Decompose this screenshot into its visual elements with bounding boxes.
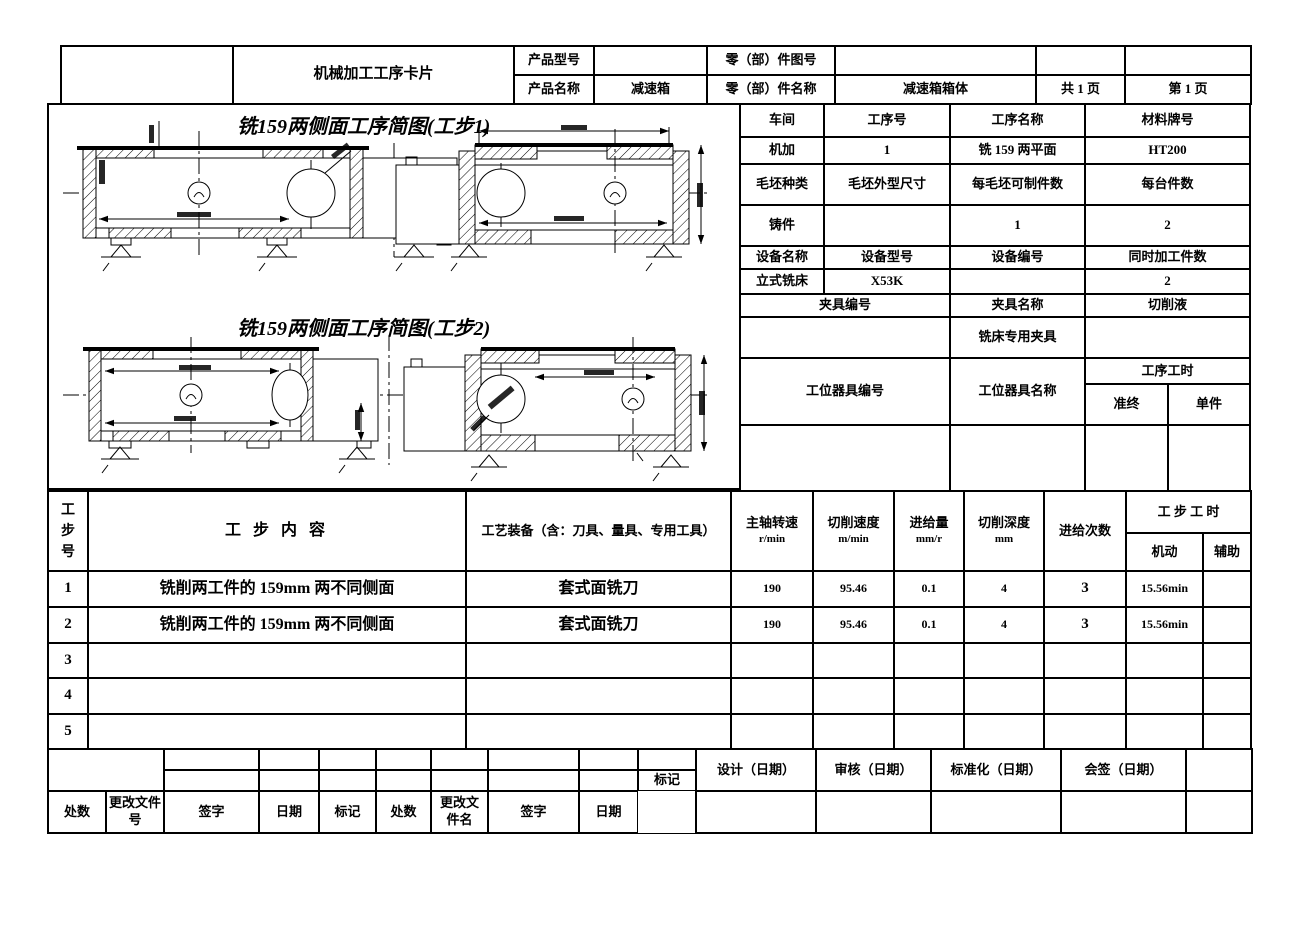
step-row-spindle: 190 xyxy=(731,607,813,643)
empty-cell xyxy=(1036,46,1125,75)
operation-name-value: 铣 159 两平面 xyxy=(950,137,1085,164)
step-row-spindle xyxy=(731,678,813,714)
header-blank-cell xyxy=(61,46,233,104)
equipment-name-value: 立式铣床 xyxy=(740,269,824,294)
revision-doc-no-label: 更改文件号 xyxy=(106,791,164,833)
step-row-machine-time xyxy=(1126,643,1203,678)
step-row-no: 5 xyxy=(48,714,88,749)
step-row-depth: 4 xyxy=(964,571,1044,607)
workshop-value: 机加 xyxy=(740,137,824,164)
revision-date-label: 日期 xyxy=(579,791,638,833)
step-row-depth: 4 xyxy=(964,607,1044,643)
standardization-signature-cell xyxy=(931,791,1061,833)
fixture-name-value: 铣床专用夹具 xyxy=(950,317,1085,358)
cutting-speed-label: 切削速度 xyxy=(827,515,879,532)
sketch-step2-title: 铣159两侧面工序简图(工步2) xyxy=(237,317,490,340)
step-time-header: 工 步 工 时 xyxy=(1126,491,1251,533)
product-model-label: 产品型号 xyxy=(514,46,594,75)
step-row-depth xyxy=(964,714,1044,749)
blank-size-label: 毛坯外型尺寸 xyxy=(824,164,950,205)
station-tool-name-label: 工位器具名称 xyxy=(950,358,1085,425)
step-row-equipment xyxy=(466,678,731,714)
empty-cell xyxy=(1186,791,1252,833)
blank-type-value: 铸件 xyxy=(740,205,824,246)
empty-cell xyxy=(579,749,638,770)
part-name-label: 零（部）件名称 xyxy=(707,75,835,104)
empty-cell xyxy=(579,770,638,791)
step-row-passes xyxy=(1044,643,1126,678)
part-no-label: 零（部）件图号 xyxy=(707,46,835,75)
step-row-spindle: 190 xyxy=(731,571,813,607)
step-row-machine-time xyxy=(1126,678,1203,714)
step-row-speed xyxy=(813,678,894,714)
equipment-no-label: 设备编号 xyxy=(950,246,1085,269)
empty-cell xyxy=(1186,749,1252,791)
process-hours-label: 工序工时 xyxy=(1085,358,1250,384)
product-name-value: 减速箱 xyxy=(594,75,707,104)
operation-name-label: 工序名称 xyxy=(950,104,1085,137)
prep-end-value xyxy=(1085,425,1168,491)
sketch-step1: 铣159两侧面工序简图(工步1) xyxy=(63,115,707,271)
countersign-date-label: 会签（日期） xyxy=(1061,749,1186,791)
page-current: 第 1 页 xyxy=(1125,75,1251,104)
process-info-table: 车间 工序号 工序名称 材料牌号 机加 1 铣 159 两平面 HT200 毛坯… xyxy=(739,103,1251,492)
operation-no-value: 1 xyxy=(824,137,950,164)
fixture-name-label: 夹具名称 xyxy=(950,294,1085,317)
revision-count-label: 处数 xyxy=(376,791,431,833)
step-no-header: 工 步 号 xyxy=(48,491,88,571)
step-row-no: 1 xyxy=(48,571,88,607)
fixture-no-label: 夹具编号 xyxy=(740,294,950,317)
sketch-step1-title: 铣159两侧面工序简图(工步1) xyxy=(237,115,490,138)
empty-cell xyxy=(1125,46,1251,75)
revision-signature-label: 签字 xyxy=(488,791,579,833)
empty-cell xyxy=(431,770,488,791)
step-row-equipment: 套式面铣刀 xyxy=(466,607,731,643)
process-card-page: 机械加工工序卡片 产品型号 零（部）件图号 产品名称 减速箱 零（部）件名称 减… xyxy=(0,0,1310,926)
empty-cell xyxy=(319,749,376,770)
design-signature-cell xyxy=(696,791,816,833)
part-name-value: 减速箱箱体 xyxy=(835,75,1036,104)
header-table: 机械加工工序卡片 产品型号 零（部）件图号 产品名称 减速箱 零（部）件名称 减… xyxy=(60,45,1252,105)
step-row-content: 铣削两工件的 159mm 两不同侧面 xyxy=(88,607,466,643)
step-row-feed xyxy=(894,643,964,678)
step-row-machine-time: 15.56min xyxy=(1126,571,1203,607)
cutting-depth-unit: mm xyxy=(995,532,1013,546)
step-row-aux-time xyxy=(1203,678,1251,714)
doc-title: 机械加工工序卡片 xyxy=(233,46,514,104)
empty-cell xyxy=(488,749,579,770)
step-row-aux-time xyxy=(1203,714,1251,749)
prep-end-label: 准终 xyxy=(1085,384,1168,425)
empty-cell xyxy=(376,770,431,791)
coolant-label: 切削液 xyxy=(1085,294,1250,317)
steps-table: 工 步 号 工 步 内 容 工艺装备（含：刀具、量具、专用工具） 主轴转速 r/… xyxy=(47,490,1252,750)
product-model-value xyxy=(594,46,707,75)
step-row-no: 4 xyxy=(48,678,88,714)
simultaneous-parts-value: 2 xyxy=(1085,269,1250,294)
revision-mark-label: 标记 xyxy=(638,770,696,791)
operation-no-label: 工序号 xyxy=(824,104,950,137)
empty-cell xyxy=(48,749,164,791)
equipment-model-value: X53K xyxy=(824,269,950,294)
station-tool-no-label: 工位器具编号 xyxy=(740,358,950,425)
feed-unit: mm/r xyxy=(916,532,942,546)
step-row-equipment xyxy=(466,714,731,749)
spindle-speed-unit: r/min xyxy=(759,532,785,546)
revision-block: 标记 处数 更改文件号 签字 日期 标记 处数 更改文件名 签字 日期 xyxy=(47,748,697,834)
step-row-content xyxy=(88,678,466,714)
step-row-passes xyxy=(1044,714,1126,749)
step-row-aux-time xyxy=(1203,607,1251,643)
step-row-speed xyxy=(813,714,894,749)
simultaneous-parts-label: 同时加工件数 xyxy=(1085,246,1250,269)
step-row-aux-time xyxy=(1203,643,1251,678)
equipment-model-label: 设备型号 xyxy=(824,246,950,269)
step-row-equipment: 套式面铣刀 xyxy=(466,571,731,607)
passes-header: 进给次数 xyxy=(1044,491,1126,571)
equipment-no-value xyxy=(950,269,1085,294)
empty-cell xyxy=(431,749,488,770)
pages-total: 共 1 页 xyxy=(1036,75,1125,104)
parts-per-blank-label: 每毛坯可制件数 xyxy=(950,164,1085,205)
material-grade-label: 材料牌号 xyxy=(1085,104,1250,137)
step-row-feed: 0.1 xyxy=(894,607,964,643)
per-piece-label: 单件 xyxy=(1168,384,1250,425)
step-content-header: 工 步 内 容 xyxy=(88,491,466,571)
step-row-speed: 95.46 xyxy=(813,571,894,607)
per-piece-value xyxy=(1168,425,1250,491)
step-row-passes: 3 xyxy=(1044,571,1126,607)
standardization-date-label: 标准化（日期） xyxy=(931,749,1061,791)
spindle-speed-header: 主轴转速 r/min xyxy=(731,491,813,571)
cutting-depth-header: 切削深度 mm xyxy=(964,491,1044,571)
step-row-no: 2 xyxy=(48,607,88,643)
feed-header: 进给量 mm/r xyxy=(894,491,964,571)
empty-cell xyxy=(376,749,431,770)
aux-time-header: 辅助 xyxy=(1203,533,1251,571)
step-row-passes: 3 xyxy=(1044,607,1126,643)
material-grade-value: HT200 xyxy=(1085,137,1250,164)
check-signature-cell xyxy=(816,791,931,833)
step-row-machine-time: 15.56min xyxy=(1126,607,1203,643)
workshop-label: 车间 xyxy=(740,104,824,137)
parts-per-blank-value: 1 xyxy=(950,205,1085,246)
step-row-spindle xyxy=(731,643,813,678)
check-date-label: 审核（日期） xyxy=(816,749,931,791)
step-row-spindle xyxy=(731,714,813,749)
revision-count-label: 处数 xyxy=(48,791,106,833)
product-name-label: 产品名称 xyxy=(514,75,594,104)
blank-type-label: 毛坯种类 xyxy=(740,164,824,205)
station-tool-name-value xyxy=(950,425,1085,491)
spindle-speed-label: 主轴转速 xyxy=(746,515,798,532)
empty-cell xyxy=(488,770,579,791)
step-row-machine-time xyxy=(1126,714,1203,749)
step-row-content xyxy=(88,714,466,749)
step-row-equipment xyxy=(466,643,731,678)
fixture-no-value xyxy=(740,317,950,358)
empty-cell xyxy=(164,749,259,770)
blank-size-value xyxy=(824,205,950,246)
step-row-content xyxy=(88,643,466,678)
step-row-feed: 0.1 xyxy=(894,571,964,607)
step-row-speed: 95.46 xyxy=(813,607,894,643)
step-row-depth xyxy=(964,643,1044,678)
design-date-label: 设计（日期） xyxy=(696,749,816,791)
approval-block: 设计（日期） 审核（日期） 标准化（日期） 会签（日期） xyxy=(695,748,1253,834)
countersign-signature-cell xyxy=(1061,791,1186,833)
station-tool-no-value xyxy=(740,425,950,491)
parts-per-unit-value: 2 xyxy=(1085,205,1250,246)
empty-cell xyxy=(259,770,319,791)
sketch-step2: 铣159两侧面工序简图(工步2) xyxy=(63,317,707,481)
sketch-panel: 铣159两侧面工序简图(工步1) xyxy=(47,103,742,490)
parts-per-unit-label: 每台件数 xyxy=(1085,164,1250,205)
revision-date-label: 日期 xyxy=(259,791,319,833)
coolant-value xyxy=(1085,317,1250,358)
revision-doc-name-label: 更改文件名 xyxy=(431,791,488,833)
cutting-speed-unit: m/min xyxy=(838,532,869,546)
empty-cell xyxy=(319,770,376,791)
equipment-header: 工艺装备（含：刀具、量具、专用工具） xyxy=(466,491,731,571)
empty-cell xyxy=(164,770,259,791)
revision-mark-label: 标记 xyxy=(319,791,376,833)
equipment-name-label: 设备名称 xyxy=(740,246,824,269)
process-sketch: 铣159两侧面工序简图(工步1) xyxy=(49,105,740,488)
step-row-aux-time xyxy=(1203,571,1251,607)
empty-cell xyxy=(259,749,319,770)
step-row-content: 铣削两工件的 159mm 两不同侧面 xyxy=(88,571,466,607)
revision-signature-label: 签字 xyxy=(164,791,259,833)
part-no-value xyxy=(835,46,1036,75)
step-row-feed xyxy=(894,678,964,714)
step-row-passes xyxy=(1044,678,1126,714)
step-row-speed xyxy=(813,643,894,678)
machine-time-header: 机动 xyxy=(1126,533,1203,571)
empty-cell xyxy=(638,749,696,770)
step-row-depth xyxy=(964,678,1044,714)
cutting-depth-label: 切削深度 xyxy=(978,515,1030,532)
step-row-no: 3 xyxy=(48,643,88,678)
cutting-speed-header: 切削速度 m/min xyxy=(813,491,894,571)
feed-label: 进给量 xyxy=(909,515,948,532)
step-row-feed xyxy=(894,714,964,749)
